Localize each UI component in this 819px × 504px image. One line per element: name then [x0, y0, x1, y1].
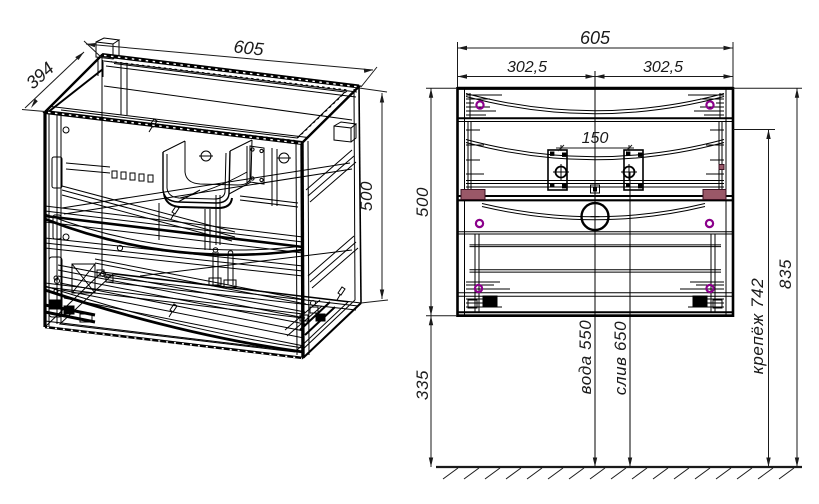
- svg-text:302,5: 302,5: [643, 59, 683, 76]
- svg-text:крепёж 742: крепёж 742: [748, 278, 767, 375]
- svg-text:605: 605: [233, 37, 266, 60]
- svg-text:500: 500: [413, 187, 432, 217]
- svg-text:302,5: 302,5: [507, 59, 547, 76]
- svg-text:слив 650: слив 650: [611, 321, 630, 395]
- svg-text:вода 550: вода 550: [576, 320, 595, 395]
- svg-text:500: 500: [357, 181, 376, 211]
- svg-text:605: 605: [580, 28, 611, 48]
- svg-text:150: 150: [582, 130, 609, 147]
- svg-text:335: 335: [413, 370, 432, 400]
- svg-text:835: 835: [776, 259, 795, 289]
